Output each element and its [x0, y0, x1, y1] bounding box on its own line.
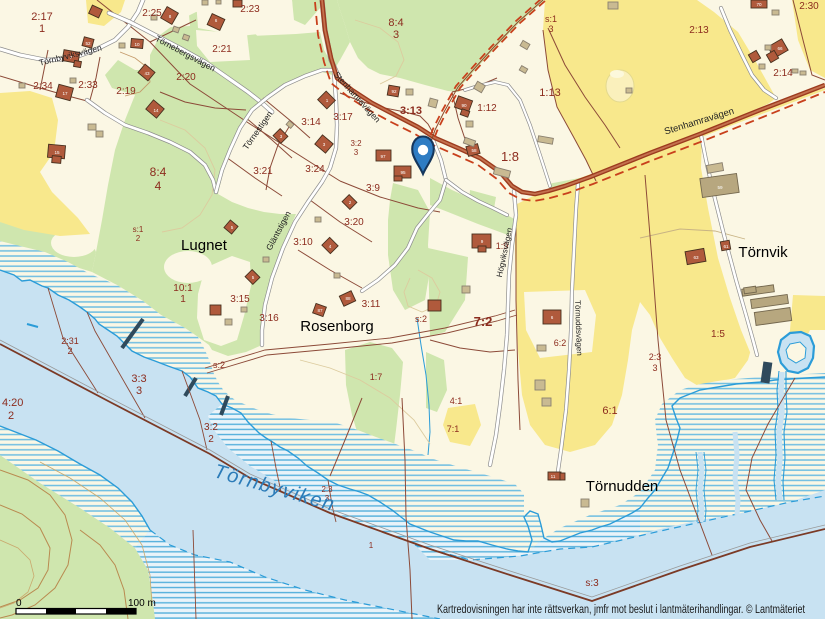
svg-text:90: 90 [461, 103, 467, 108]
svg-text:10: 10 [134, 42, 140, 47]
svg-text:63: 63 [693, 255, 699, 260]
svg-text:10:1: 10:1 [173, 283, 193, 294]
svg-text:3:20: 3:20 [344, 217, 364, 228]
svg-text:8:4: 8:4 [388, 17, 403, 29]
svg-text:3: 3 [393, 29, 399, 41]
svg-text:1:8: 1:8 [501, 149, 519, 164]
svg-text:2:31: 2:31 [61, 336, 79, 346]
svg-text:6: 6 [215, 18, 218, 23]
svg-text:3:9: 3:9 [366, 183, 380, 194]
svg-text:58: 58 [471, 148, 477, 153]
svg-text:95: 95 [400, 170, 406, 175]
svg-text:2:34: 2:34 [33, 81, 53, 92]
svg-text:3: 3 [136, 385, 142, 397]
svg-text:7: 7 [70, 55, 73, 60]
svg-text:3:2: 3:2 [350, 139, 362, 148]
svg-text:4: 4 [155, 179, 162, 193]
svg-text:3: 3 [354, 148, 359, 157]
svg-text:2:3: 2:3 [649, 352, 662, 362]
svg-text:14: 14 [153, 108, 159, 113]
svg-text:2: 2 [349, 200, 352, 205]
svg-text:1:7: 1:7 [370, 372, 383, 382]
svg-text:2:14: 2:14 [773, 68, 793, 79]
svg-text:3: 3 [548, 24, 553, 34]
svg-text:59: 59 [717, 185, 723, 190]
svg-text:3:15: 3:15 [230, 294, 250, 305]
svg-text:97: 97 [380, 154, 386, 159]
svg-text:1: 1 [180, 294, 186, 305]
svg-text:7:1: 7:1 [447, 424, 460, 434]
svg-text:6: 6 [551, 315, 554, 320]
svg-text:87: 87 [317, 308, 323, 313]
svg-text:100 m: 100 m [128, 598, 156, 609]
svg-text:5: 5 [231, 225, 234, 230]
svg-text:3:24: 3:24 [305, 164, 325, 175]
svg-text:70: 70 [756, 2, 762, 7]
svg-text:6:2: 6:2 [554, 338, 567, 348]
svg-text:3: 3 [652, 363, 657, 373]
svg-text:s:2: s:2 [213, 360, 225, 370]
svg-text:Rosenborg: Rosenborg [300, 318, 373, 335]
svg-text:2:33: 2:33 [78, 80, 98, 91]
svg-text:1: 1 [39, 23, 45, 35]
svg-text:0: 0 [16, 598, 22, 609]
svg-text:1: 1 [369, 541, 374, 550]
svg-text:4:1: 4:1 [450, 396, 463, 406]
svg-text:s:3: s:3 [585, 578, 599, 589]
svg-text:2:21: 2:21 [212, 44, 232, 55]
svg-text:8:4: 8:4 [150, 165, 167, 179]
svg-text:15: 15 [54, 150, 60, 155]
svg-text:9: 9 [481, 239, 484, 244]
svg-text:3:3: 3:3 [131, 373, 146, 385]
svg-text:17: 17 [62, 91, 68, 96]
svg-text:8: 8 [169, 14, 172, 19]
svg-text:1:5: 1:5 [711, 329, 725, 340]
svg-text:3: 3 [280, 134, 283, 139]
svg-text:Törnudden: Törnudden [586, 478, 659, 495]
svg-text:4: 4 [329, 244, 332, 249]
svg-text:4:20: 4:20 [2, 397, 23, 409]
svg-text:66: 66 [777, 46, 783, 51]
svg-text:2:30: 2:30 [799, 1, 819, 12]
svg-text:2: 2 [67, 346, 72, 356]
svg-text:11: 11 [551, 474, 556, 479]
svg-text:3: 3 [323, 142, 326, 147]
svg-text:2:13: 2:13 [689, 25, 709, 36]
svg-text:3:11: 3:11 [362, 299, 381, 310]
svg-text:3:17: 3:17 [333, 112, 353, 123]
svg-text:3:10: 3:10 [293, 237, 313, 248]
svg-text:1:13: 1:13 [539, 87, 560, 99]
svg-text:92: 92 [391, 89, 397, 94]
svg-text:3:14: 3:14 [301, 117, 321, 128]
svg-text:6:1: 6:1 [602, 405, 617, 417]
svg-text:s:1: s:1 [133, 225, 144, 234]
svg-text:2:19: 2:19 [116, 86, 136, 97]
svg-text:1:12: 1:12 [477, 103, 497, 114]
svg-text:2:23: 2:23 [240, 4, 260, 15]
svg-text:s:1: s:1 [545, 14, 557, 24]
svg-text:61: 61 [723, 244, 729, 249]
svg-text:1: 1 [326, 98, 329, 103]
svg-text:2:20: 2:20 [176, 72, 196, 83]
svg-text:Kartredovisningen har inte rät: Kartredovisningen har inte rättsverkan, … [437, 602, 805, 616]
svg-text:7:2: 7:2 [474, 314, 493, 329]
svg-text:3:16: 3:16 [259, 313, 279, 324]
svg-text:3:2: 3:2 [204, 422, 218, 433]
svg-text:2: 2 [8, 410, 14, 422]
svg-text:5: 5 [252, 275, 255, 280]
svg-text:43: 43 [144, 71, 150, 76]
svg-text:52: 52 [85, 41, 91, 46]
svg-text:88: 88 [345, 296, 351, 301]
svg-text:2: 2 [136, 234, 141, 243]
svg-text:s:2: s:2 [415, 314, 427, 324]
svg-text:3:13: 3:13 [400, 105, 422, 117]
svg-text:2:17: 2:17 [31, 11, 52, 23]
svg-text:2: 2 [208, 434, 214, 445]
svg-text:2:25: 2:25 [142, 8, 162, 19]
svg-text:3:21: 3:21 [253, 166, 273, 177]
svg-text:Törnvik: Törnvik [738, 244, 788, 261]
svg-text:Lugnet: Lugnet [181, 237, 228, 254]
